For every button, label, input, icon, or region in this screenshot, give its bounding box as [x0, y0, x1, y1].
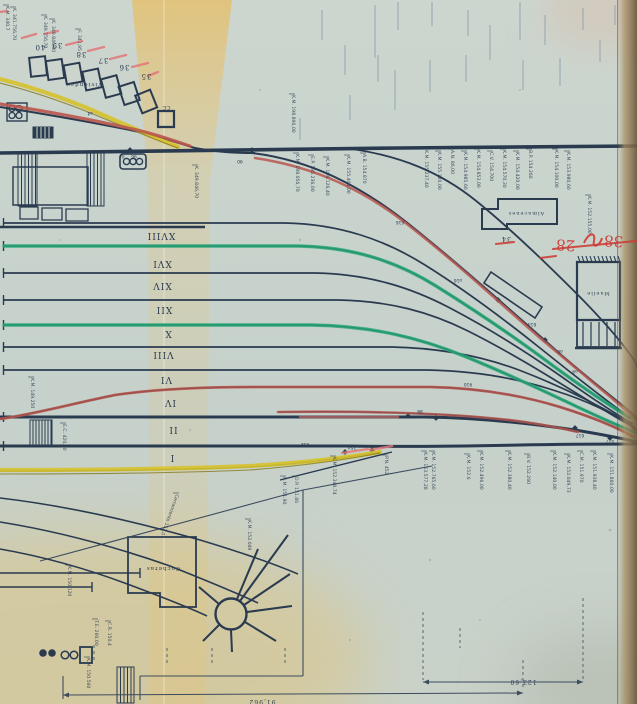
km-annotation: A.B. 154.870	[361, 154, 367, 184]
km-annotation: K.M. 150.560	[85, 658, 91, 688]
switch-number: o16	[454, 277, 462, 283]
km-annotation: A.N. 86,00	[449, 150, 455, 174]
km-annotation: K.M. 154.985,60	[462, 152, 468, 190]
switch-number: 44	[119, 153, 125, 159]
km-annotation: K.M. 340.7	[4, 6, 10, 31]
switch-number: 452	[301, 441, 310, 447]
plan-label: 36	[119, 63, 130, 71]
km-annotation: K.M. 151.938,40	[591, 452, 597, 490]
km-annotation: K.M. 152.765,60	[430, 452, 436, 490]
km-annotation: K. 349.756,70	[42, 16, 48, 48]
paper-blemish	[429, 559, 431, 561]
km-annotation: K.M. 154.853,00	[475, 150, 481, 188]
paper-blemish	[479, 619, 481, 621]
km-annotation: K.M. 152.6	[465, 455, 471, 480]
switch-number: 614	[528, 321, 537, 327]
km-annotation: K.M. 152.380,40	[506, 452, 512, 490]
page-edge	[617, 0, 637, 704]
plan-label: VI	[160, 374, 173, 384]
km-annotation: K.M. 153.577,28	[422, 452, 428, 490]
scanned-track-plan-page: XVIIIXVIXIVXIIXVIIIVIIVIIIViviendasCoche…	[0, 0, 637, 704]
paper-blemish	[299, 239, 301, 241]
km-annotation: K.M. 155.404,00	[345, 156, 351, 194]
km-annotation: K.M. 151.90	[281, 477, 287, 505]
km-annotation: K.M. 153.980,60	[565, 152, 571, 190]
plan-label: Muelle	[586, 290, 609, 296]
km-annotation: K.M. 150.120	[66, 566, 72, 596]
km-annotation: C.R. 150.4	[106, 622, 112, 646]
plan-label: Almacenes	[508, 210, 545, 216]
paper-blemish	[519, 89, 521, 91]
plan-label: 37	[98, 56, 109, 64]
switch-number: 254	[348, 444, 357, 450]
km-annotation: C.M. 151.970	[578, 452, 584, 483]
km-annotation: B.P. 154.260	[527, 150, 533, 179]
km-annotation: K.M. 198.056,70	[294, 154, 300, 192]
paper-blemish	[349, 639, 351, 641]
plan-label: Cocheras	[146, 565, 180, 571]
switch-number: 96	[131, 153, 137, 159]
km-annotation: K. 341.756,70	[11, 8, 17, 40]
km-annotation: K.M. 151.860,00	[608, 455, 614, 493]
km-annotation: K.M. 152.049	[246, 520, 252, 550]
red-handwritten-number: 38	[603, 231, 623, 250]
km-annotation: C.V. 154.700	[488, 152, 494, 181]
km-annotation: K.M. 155.120,00	[436, 152, 442, 190]
hatched-block	[33, 127, 53, 138]
plan-label: 35	[141, 72, 152, 80]
km-annotation: K. 349.846,00	[50, 20, 56, 52]
switch-number: o4	[87, 110, 93, 116]
buffer-dot	[39, 649, 47, 657]
red-handwritten-number: 28	[555, 235, 575, 254]
switch-number: 617	[576, 432, 585, 438]
plan-label: XII	[156, 304, 173, 314]
turntable-spoke	[231, 630, 232, 652]
km-annotation: E.C. 420,30	[61, 424, 67, 451]
plan-label: XVI	[152, 258, 171, 268]
km-annotation: K.M. 196.126,40	[324, 158, 330, 196]
km-annotation: E.P. 195.236,00	[309, 156, 315, 192]
plan-label: Viviendas	[66, 81, 103, 87]
km-annotation: F. 341,95	[76, 30, 82, 51]
km-annotation: K.M. 152.049,73	[565, 455, 571, 493]
km-annotation: B.V. 152.260	[525, 455, 531, 484]
km-annotation: D.P. 151.86	[293, 477, 299, 503]
switch-number: C.E.	[162, 104, 171, 110]
switch-number: 88	[417, 408, 423, 414]
km-annotation: K.M. 198.896,00	[290, 95, 296, 133]
km-annotation: K.M. 149.250	[29, 378, 35, 408]
plan-label: 91,962	[249, 698, 276, 704]
km-annotation: K.M. 154.100,00	[553, 150, 559, 188]
plan-label: 38	[76, 50, 87, 58]
switch-number: 90	[237, 158, 243, 164]
paper-blemish	[189, 429, 191, 431]
switch-number: o8	[557, 348, 563, 354]
plan-label: X	[164, 328, 171, 338]
track-plan-canvas: XVIIIXVIXIVXIIXVIIIVIIVIIIViviendasCoche…	[0, 0, 637, 704]
switch-number: o77	[606, 438, 614, 444]
km-annotation: K.M. 152.140,00	[551, 452, 557, 490]
km-annotation: K.M. 152.155,00	[586, 196, 592, 234]
paper-background	[0, 0, 637, 704]
plan-label: I	[170, 452, 175, 462]
switch-number: o9	[572, 368, 578, 374]
buffer-dot	[48, 649, 56, 657]
km-annotation: K.M. 155.237,40	[423, 150, 429, 188]
plan-label: II	[168, 424, 177, 434]
km-annotation: T.E. 260,00	[93, 619, 99, 646]
plan-label: IV	[164, 397, 176, 407]
switch-number: 910	[464, 381, 473, 387]
km-annotation: K.M. 154.570,30	[501, 150, 507, 188]
paper-blemish	[609, 529, 612, 532]
paper-blemish	[259, 89, 261, 91]
plan-label: VIII	[152, 349, 174, 359]
plan-label: XIV	[152, 280, 171, 290]
switch-number: 616	[396, 219, 405, 225]
km-annotation: P.N. 452	[383, 456, 389, 475]
km-annotation: K.M. 152.349,74	[331, 457, 337, 495]
paper-blemish	[59, 239, 61, 241]
km-annotation: K. 349.846,70	[193, 166, 199, 198]
plan-label: XVIII	[147, 230, 176, 240]
km-annotation: K.M. 152.496,00	[478, 452, 484, 490]
km-annotation: K.M. 154.420,00	[514, 152, 520, 190]
